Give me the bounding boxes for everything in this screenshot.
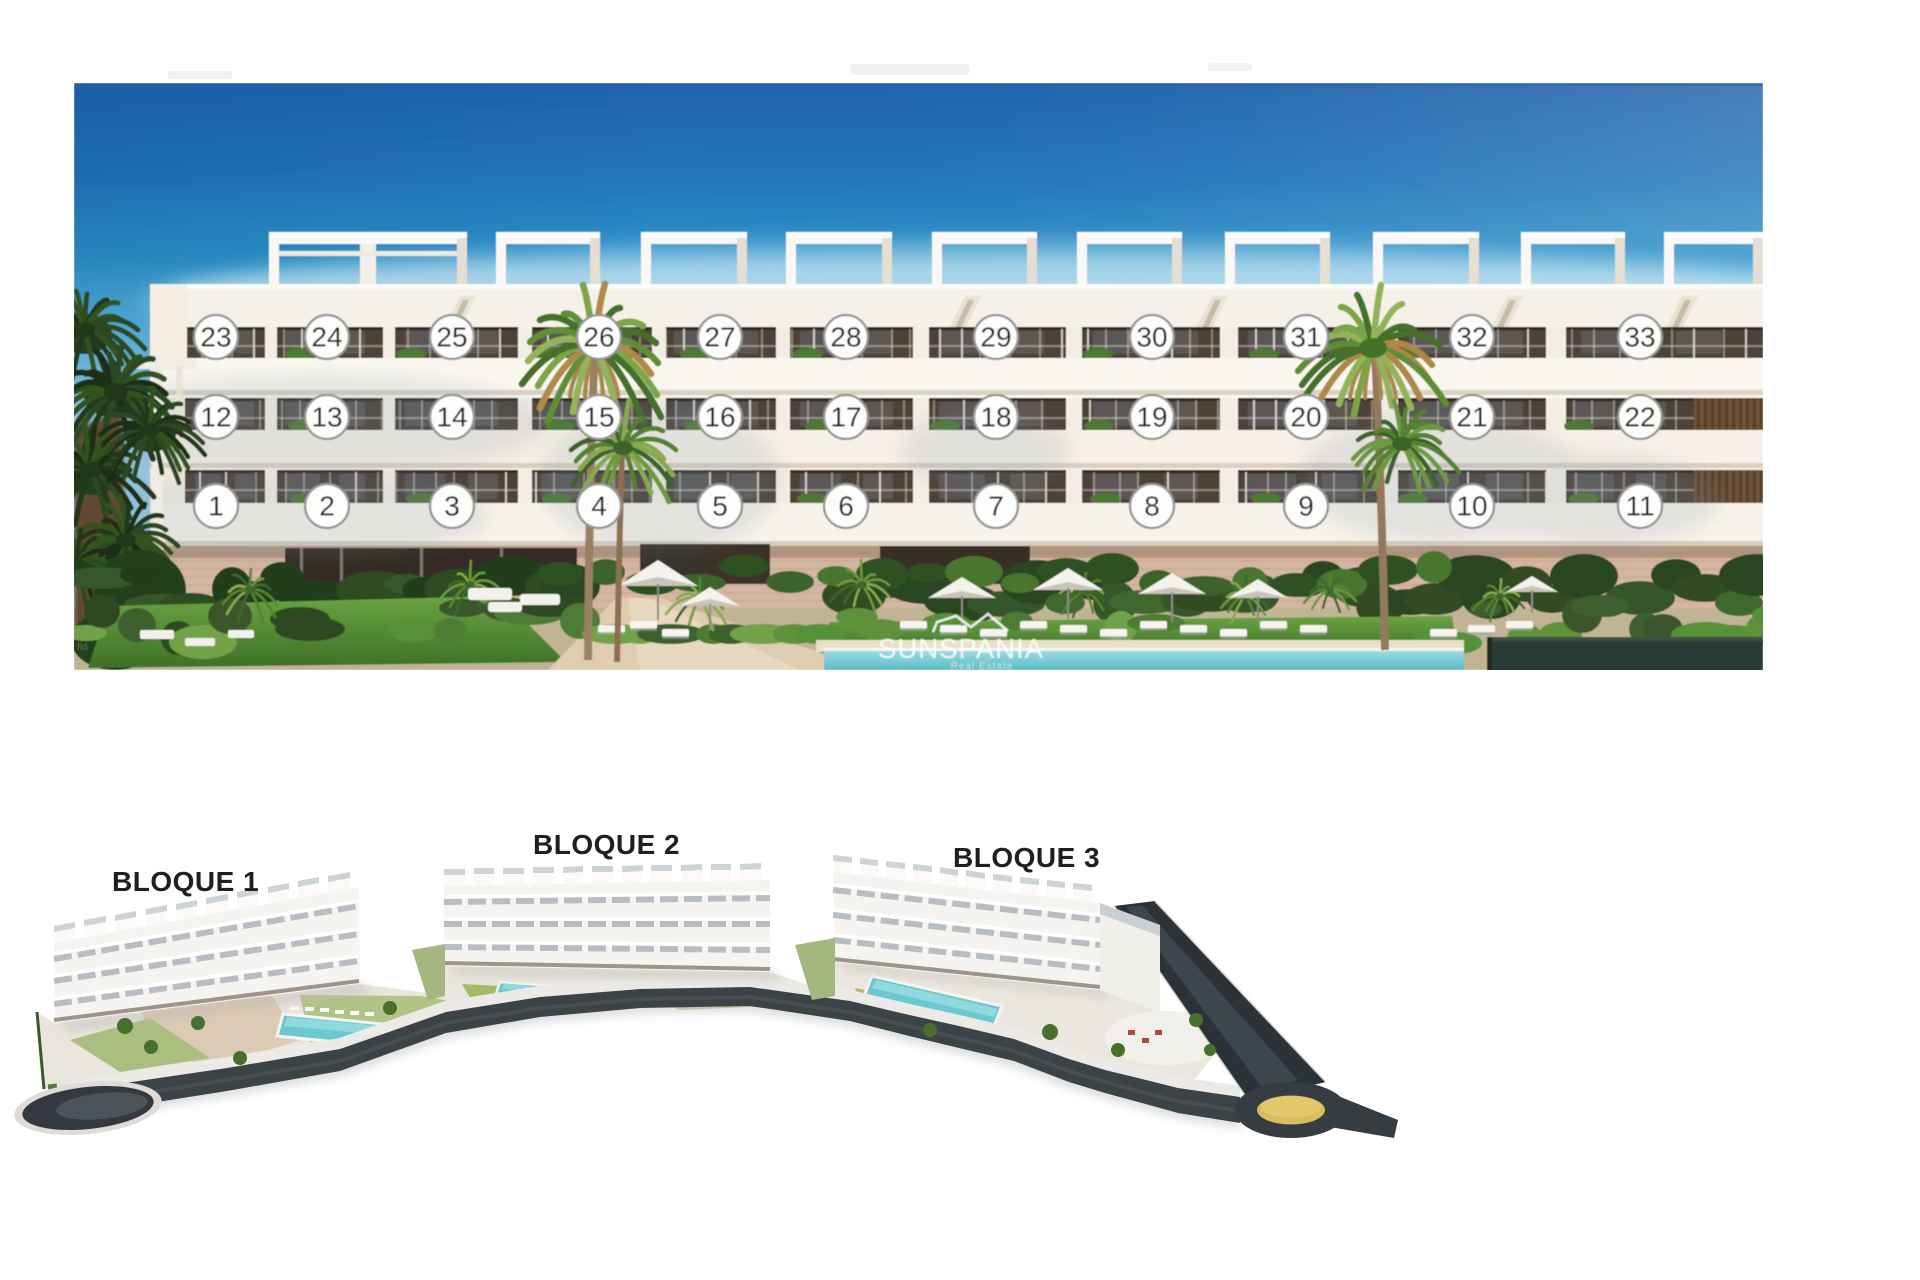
svg-text:14: 14 (436, 402, 467, 433)
svg-text:31: 31 (1290, 322, 1321, 353)
svg-text:5: 5 (712, 491, 728, 522)
svg-text:16: 16 (704, 402, 735, 433)
svg-text:26: 26 (583, 322, 614, 353)
svg-text:BLOQUE 2: BLOQUE 2 (533, 829, 680, 860)
svg-text:SUNSPANIA: SUNSPANIA (878, 633, 1044, 664)
svg-text:6: 6 (838, 491, 854, 522)
svg-text:24: 24 (311, 322, 342, 353)
svg-text:20: 20 (1290, 402, 1321, 433)
svg-text:11: 11 (1625, 491, 1654, 522)
svg-text:18: 18 (980, 402, 1011, 433)
svg-text:13: 13 (311, 402, 342, 433)
svg-text:1: 1 (208, 491, 224, 522)
svg-text:7: 7 (988, 491, 1004, 522)
svg-text:21: 21 (1456, 402, 1487, 433)
svg-text:28: 28 (830, 322, 861, 353)
svg-text:33: 33 (1624, 322, 1655, 353)
svg-text:30: 30 (1136, 322, 1167, 353)
svg-text:17: 17 (830, 402, 861, 433)
svg-text:BLOQUE 1: BLOQUE 1 (112, 866, 259, 897)
svg-text:10: 10 (1456, 491, 1487, 522)
svg-text:4: 4 (591, 491, 607, 522)
svg-text:2: 2 (319, 491, 335, 522)
svg-text:9: 9 (1298, 491, 1314, 522)
svg-text:29: 29 (980, 322, 1011, 353)
svg-text:25: 25 (436, 322, 467, 353)
svg-text:BLOQUE 3: BLOQUE 3 (953, 842, 1100, 873)
svg-text:19: 19 (1136, 402, 1167, 433)
svg-text:23: 23 (200, 322, 231, 353)
svg-text:22: 22 (1624, 402, 1655, 433)
svg-text:32: 32 (1456, 322, 1487, 353)
svg-text:3: 3 (444, 491, 460, 522)
svg-text:27: 27 (704, 322, 735, 353)
svg-text:15: 15 (583, 402, 614, 433)
svg-text:12: 12 (200, 402, 231, 433)
svg-text:fid: fid (77, 642, 88, 653)
svg-text:8: 8 (1144, 491, 1160, 522)
